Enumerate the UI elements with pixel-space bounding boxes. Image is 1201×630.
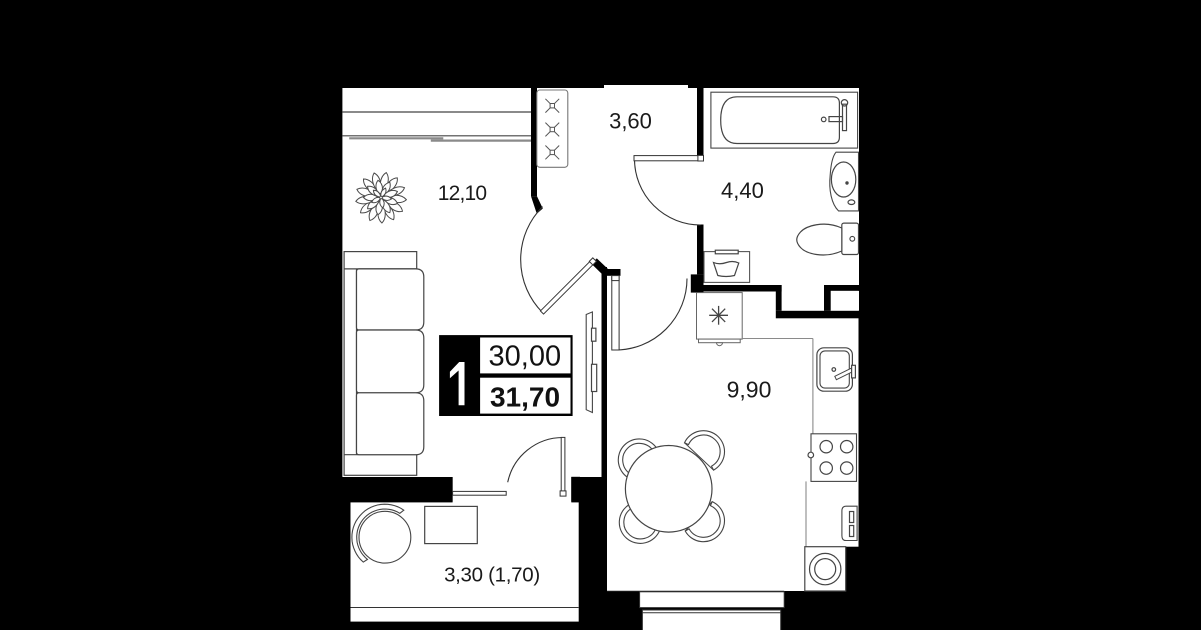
svg-text:3,30 (1,70): 3,30 (1,70) bbox=[444, 564, 540, 587]
svg-text:3,60: 3,60 bbox=[609, 109, 652, 134]
svg-text:4,40: 4,40 bbox=[721, 178, 764, 203]
svg-text:12,10: 12,10 bbox=[438, 182, 487, 205]
svg-text:9,90: 9,90 bbox=[727, 377, 772, 403]
svg-text:30,00: 30,00 bbox=[489, 340, 562, 372]
svg-text:31,70: 31,70 bbox=[490, 382, 560, 413]
